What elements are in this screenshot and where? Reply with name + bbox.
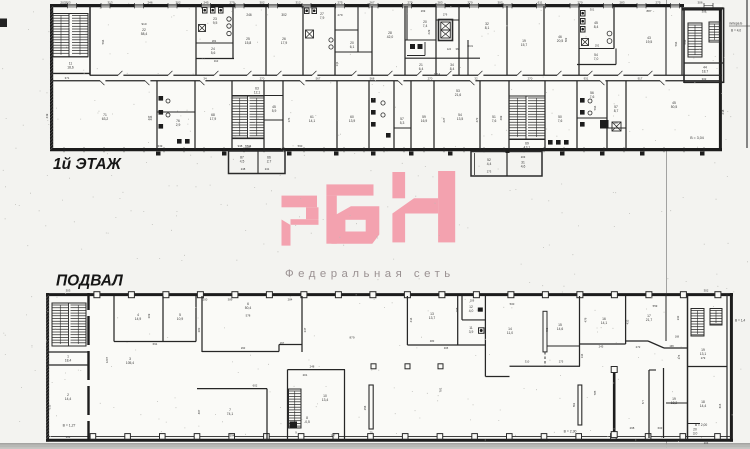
svg-text:279: 279 (443, 13, 448, 17)
svg-text:917: 917 (638, 76, 643, 80)
svg-text:371: 371 (65, 76, 70, 80)
svg-text:15,7: 15,7 (521, 43, 528, 47)
svg-text:8,4: 8,4 (594, 25, 599, 29)
svg-text:603: 603 (658, 426, 663, 430)
svg-text:310: 310 (525, 360, 530, 364)
svg-text:297: 297 (331, 434, 336, 438)
svg-text:7,9: 7,9 (320, 16, 325, 20)
svg-text:201: 201 (303, 373, 308, 377)
svg-text:270: 270 (260, 76, 265, 80)
svg-text:5,9: 5,9 (272, 109, 277, 113)
svg-text:1031: 1031 (467, 44, 474, 48)
svg-text:302: 302 (281, 13, 287, 17)
svg-text:432: 432 (626, 319, 630, 324)
svg-text:144: 144 (580, 353, 584, 358)
svg-text:168: 168 (675, 336, 680, 339)
svg-text:309: 309 (147, 313, 151, 318)
svg-text:6,4: 6,4 (419, 67, 424, 71)
svg-text:9,5: 9,5 (213, 21, 218, 25)
svg-text:407: 407 (197, 409, 201, 414)
svg-text:500: 500 (510, 302, 515, 306)
svg-text:279: 279 (407, 0, 412, 4)
svg-text:ПОДВАЛ: ПОДВАЛ (56, 273, 123, 290)
svg-text:11,0: 11,0 (507, 331, 513, 335)
svg-text:2,7: 2,7 (267, 160, 272, 164)
svg-text:272: 272 (636, 345, 641, 349)
svg-text:938: 938 (238, 144, 243, 148)
svg-text:499: 499 (499, 115, 503, 120)
svg-text:В = 2,30: В = 2,30 (564, 430, 577, 434)
svg-text:63,2: 63,2 (102, 117, 109, 121)
svg-text:577: 577 (641, 399, 645, 404)
svg-text:42,0: 42,0 (387, 35, 394, 39)
svg-text:6,1: 6,1 (350, 45, 355, 49)
svg-text:-0,5: -0,5 (304, 420, 310, 424)
svg-text:578: 578 (246, 314, 251, 318)
svg-text:Федеральная сеть: Федеральная сеть (285, 268, 455, 280)
svg-text:274: 274 (677, 354, 681, 359)
svg-text:568: 568 (370, 76, 375, 80)
svg-text:879: 879 (349, 336, 354, 340)
svg-text:594: 594 (101, 39, 105, 44)
svg-text:270: 270 (467, 0, 472, 4)
svg-text:275: 275 (559, 360, 564, 364)
svg-text:383: 383 (197, 327, 201, 332)
svg-text:20,5: 20,5 (557, 39, 564, 43)
svg-text:279: 279 (229, 0, 234, 4)
svg-text:480: 480 (430, 339, 435, 343)
svg-text:268: 268 (630, 426, 635, 430)
svg-text:14,6: 14,6 (557, 327, 564, 331)
svg-text:414: 414 (409, 317, 413, 322)
svg-text:594: 594 (674, 41, 678, 46)
svg-text:198: 198 (455, 307, 459, 312)
svg-text:495: 495 (444, 346, 449, 350)
svg-text:58,4: 58,4 (141, 32, 148, 36)
svg-text:13,1: 13,1 (700, 352, 707, 356)
svg-text:275: 275 (655, 0, 660, 4)
svg-text:302: 302 (259, 0, 264, 4)
svg-text:437: 437 (147, 115, 151, 120)
svg-text:14,1: 14,1 (309, 119, 316, 123)
svg-text:4,6: 4,6 (521, 165, 526, 169)
svg-text:В = 4,0: В = 4,0 (731, 29, 741, 33)
svg-text:451: 451 (545, 327, 549, 332)
svg-text:302: 302 (702, 77, 707, 81)
svg-text:478: 478 (584, 317, 588, 322)
svg-text:931: 931 (584, 76, 589, 80)
svg-text:14,4: 14,4 (65, 397, 72, 401)
svg-text:313: 313 (107, 0, 112, 4)
svg-text:8,1: 8,1 (485, 26, 490, 30)
svg-text:312: 312 (295, 0, 300, 4)
svg-text:887: 887 (646, 9, 651, 13)
svg-text:15,8: 15,8 (245, 41, 252, 45)
svg-text:17,9: 17,9 (210, 117, 217, 121)
svg-text:473: 473 (475, 117, 479, 122)
svg-text:13,1: 13,1 (524, 146, 531, 150)
svg-text:627: 627 (442, 117, 446, 122)
svg-text:3,9: 3,9 (469, 330, 474, 334)
svg-text:14,4: 14,4 (700, 404, 707, 408)
svg-text:2,9: 2,9 (176, 123, 181, 127)
svg-text:259: 259 (246, 145, 251, 149)
svg-text:1207: 1207 (105, 356, 109, 363)
svg-text:7,6: 7,6 (492, 119, 497, 123)
svg-text:602: 602 (253, 383, 258, 387)
svg-text:36: 36 (455, 47, 459, 51)
svg-text:124: 124 (447, 48, 452, 51)
svg-text:203: 203 (704, 441, 709, 445)
svg-text:50,5: 50,5 (671, 105, 678, 109)
svg-text:270: 270 (528, 76, 533, 80)
svg-text:В = 1,4: В = 1,4 (735, 319, 745, 323)
svg-text:618: 618 (721, 109, 725, 114)
svg-text:245: 245 (203, 0, 208, 4)
svg-text:302: 302 (497, 0, 502, 4)
svg-text:245: 245 (599, 345, 604, 349)
svg-text:74,1: 74,1 (227, 412, 234, 416)
svg-text:5,3: 5,3 (400, 121, 405, 125)
svg-text:599: 599 (564, 37, 568, 42)
svg-text:297: 297 (280, 341, 285, 345)
svg-text:270: 270 (577, 0, 582, 4)
svg-text:284: 284 (288, 298, 293, 302)
svg-text:12,1: 12,1 (254, 91, 261, 95)
svg-text:287: 287 (614, 121, 619, 125)
svg-text:560: 560 (298, 144, 303, 148)
svg-text:176: 176 (287, 117, 291, 122)
svg-text:105,4: 105,4 (126, 361, 134, 365)
svg-text:18,6: 18,6 (67, 66, 74, 70)
svg-text:389: 389 (228, 298, 233, 302)
svg-text:50,4: 50,4 (245, 306, 252, 310)
svg-text:419: 419 (45, 113, 49, 118)
svg-text:310: 310 (214, 59, 219, 63)
svg-text:246: 246 (147, 0, 152, 4)
svg-text:301: 301 (590, 8, 595, 12)
svg-text:273: 273 (487, 170, 492, 174)
svg-text:691: 691 (153, 342, 158, 346)
svg-text:168: 168 (669, 345, 674, 348)
svg-text:13,4: 13,4 (322, 398, 329, 402)
svg-text:3,0: 3,0 (693, 432, 698, 436)
svg-text:4,4: 4,4 (487, 162, 492, 166)
svg-text:248: 248 (310, 364, 315, 368)
svg-text:694: 694 (683, 39, 687, 44)
svg-text:13,7: 13,7 (429, 316, 436, 320)
svg-text:В = 3,04: В = 3,04 (690, 136, 704, 140)
svg-text:290: 290 (241, 346, 246, 350)
svg-text:4,0: 4,0 (469, 309, 474, 313)
svg-text:200: 200 (203, 298, 208, 302)
svg-text:256: 256 (363, 405, 367, 410)
svg-text:7,4: 7,4 (423, 24, 428, 28)
svg-text:567: 567 (316, 76, 321, 80)
svg-text:19,5: 19,5 (646, 40, 653, 44)
svg-text:8,7: 8,7 (614, 109, 619, 113)
svg-text:306: 306 (697, 0, 702, 4)
svg-text:13,5: 13,5 (457, 117, 464, 121)
svg-text:562: 562 (572, 402, 576, 407)
svg-text:283: 283 (619, 0, 624, 4)
svg-text:279: 279 (701, 356, 706, 360)
svg-text:14,9: 14,9 (135, 317, 142, 321)
svg-text:339: 339 (158, 144, 163, 148)
svg-text:910: 910 (141, 22, 146, 26)
svg-text:270: 270 (428, 76, 433, 80)
svg-text:7,6: 7,6 (590, 95, 595, 99)
svg-text:241: 241 (265, 167, 270, 171)
svg-text:21,6: 21,6 (455, 93, 462, 97)
svg-text:611: 611 (538, 0, 543, 4)
svg-text:17,9: 17,9 (281, 41, 288, 45)
svg-text:302: 302 (175, 0, 180, 4)
svg-text:282: 282 (212, 39, 217, 43)
svg-text:10,9: 10,9 (177, 317, 184, 321)
svg-text:594: 594 (593, 105, 597, 110)
svg-text:246: 246 (246, 13, 252, 17)
svg-text:269: 269 (421, 9, 426, 13)
svg-text:275: 275 (337, 0, 342, 4)
svg-text:18,7: 18,7 (702, 70, 709, 74)
svg-text:303: 303 (65, 0, 70, 4)
svg-text:559: 559 (653, 304, 658, 308)
svg-text:7,0: 7,0 (594, 57, 599, 61)
svg-text:248: 248 (241, 167, 246, 171)
svg-text:1214: 1214 (434, 72, 441, 76)
svg-text:7,6: 7,6 (558, 119, 563, 123)
svg-text:342: 342 (676, 315, 680, 320)
svg-text:1й ЭТАЖ: 1й ЭТАЖ (53, 156, 123, 173)
svg-text:13,9: 13,9 (349, 119, 356, 123)
svg-text:279: 279 (337, 13, 342, 17)
svg-text:781: 781 (439, 387, 443, 392)
svg-text:21,7: 21,7 (646, 318, 653, 322)
svg-text:292: 292 (595, 44, 600, 48)
svg-text:302: 302 (66, 435, 71, 439)
svg-text:615: 615 (718, 403, 722, 408)
svg-text:302: 302 (704, 288, 709, 292)
svg-text:В = 1,27: В = 1,27 (63, 424, 76, 428)
svg-text:5,6: 5,6 (211, 51, 216, 55)
svg-text:629: 629 (427, 29, 431, 34)
svg-text:16,9: 16,9 (421, 119, 428, 123)
svg-text:18,4: 18,4 (65, 359, 72, 363)
svg-text:785: 785 (593, 390, 597, 395)
svg-text:8,4: 8,4 (450, 67, 455, 71)
svg-text:267: 267 (369, 0, 374, 4)
svg-text:14,1: 14,1 (601, 321, 608, 325)
svg-text:337: 337 (303, 327, 307, 332)
svg-text:209: 209 (470, 299, 475, 303)
svg-text:203: 203 (521, 155, 526, 159)
svg-text:594: 594 (230, 434, 235, 438)
